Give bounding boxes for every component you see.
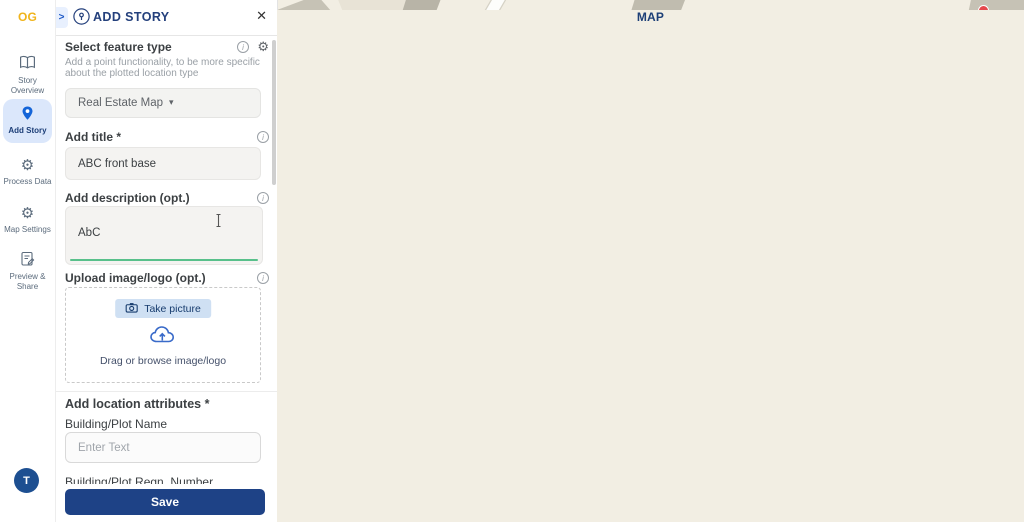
- chevron-down-icon: ▾: [169, 98, 174, 108]
- sidebar-item-story-overview[interactable]: Story Overview: [3, 55, 52, 95]
- upload-info-icon[interactable]: i: [257, 272, 269, 284]
- logo-og-text: OG: [18, 10, 37, 24]
- map-settings-gear-icon: ⚙: [3, 204, 52, 222]
- focus-underline: [70, 259, 258, 261]
- sidebar-item-map-settings[interactable]: ⚙ Map Settings: [3, 204, 52, 235]
- sidebar-item-preview-share[interactable]: Preview & Share: [3, 251, 52, 291]
- app-window: MAPOG Story Overview Add Story ⚙ Process…: [0, 0, 1024, 522]
- process-data-gear-icon: ⚙: [3, 156, 52, 174]
- feature-type-value: Real Estate Map: [78, 97, 163, 109]
- drag-browse-label: Drag or browse image/logo: [66, 355, 260, 367]
- upload-dropzone[interactable]: Take picture Drag or browse image/logo: [65, 287, 261, 383]
- feature-info-icon[interactable]: i: [237, 41, 249, 53]
- sidebar-item-process-data[interactable]: ⚙ Process Data: [3, 156, 52, 187]
- title-info-icon[interactable]: i: [257, 131, 269, 143]
- feature-type-label: Select feature type: [65, 40, 172, 54]
- add-story-panel: > ADD STORY ✕ Select feature type i ⚙ Ad…: [55, 0, 278, 522]
- feature-help-text: Add a point functionality, to be more sp…: [65, 57, 267, 68]
- logo-map-text: MAP: [277, 10, 1024, 522]
- feature-settings-gear-icon[interactable]: ⚙: [257, 40, 269, 55]
- story-overview-icon: [3, 55, 52, 73]
- sidebar-item-label: Add Story: [3, 126, 52, 136]
- building-name-input[interactable]: [65, 432, 261, 463]
- sidebar-item-label: Process Data: [3, 177, 52, 187]
- description-label: Add description (opt.): [65, 191, 190, 205]
- panel-scrollbar[interactable]: [272, 40, 276, 185]
- save-button[interactable]: Save: [65, 489, 265, 515]
- description-value: AbC: [78, 227, 100, 239]
- collapse-panel-button[interactable]: >: [55, 7, 68, 28]
- feature-type-select[interactable]: Real Estate Map ▾: [65, 88, 261, 118]
- panel-footer: Save: [55, 484, 277, 522]
- sidebar-item-add-story[interactable]: Add Story: [3, 99, 52, 143]
- building-name-label: Building/Plot Name: [65, 417, 167, 431]
- upload-label: Upload image/logo (opt.): [65, 271, 206, 285]
- panel-header: > ADD STORY ✕: [55, 0, 277, 36]
- story-pin-icon: [73, 8, 90, 30]
- text-cursor-icon: [214, 213, 223, 233]
- take-picture-button[interactable]: Take picture: [115, 299, 211, 318]
- mapog-logo[interactable]: MAPOG: [0, 10, 55, 24]
- close-panel-icon[interactable]: ✕: [256, 9, 267, 24]
- location-attributes-label: Add location attributes *: [65, 397, 209, 411]
- sidebar-item-label: Preview & Share: [3, 272, 52, 291]
- add-story-pin-icon: [3, 105, 52, 123]
- camera-icon: [125, 302, 138, 316]
- preview-share-icon: [3, 251, 52, 269]
- description-info-icon[interactable]: i: [257, 192, 269, 204]
- sidebar-item-label: Story Overview: [3, 76, 52, 95]
- feature-help-text: about the plotted location type: [65, 68, 267, 79]
- description-textarea[interactable]: AbC: [65, 206, 263, 265]
- take-picture-label: Take picture: [144, 303, 201, 315]
- cloud-upload-icon[interactable]: [149, 323, 177, 349]
- title-label: Add title *: [65, 130, 121, 144]
- title-input[interactable]: [65, 147, 261, 180]
- section-divider: [55, 391, 277, 392]
- sidebar-item-label: Map Settings: [3, 225, 52, 235]
- panel-title: ADD STORY: [93, 10, 170, 24]
- sidebar: MAPOG Story Overview Add Story ⚙ Process…: [0, 0, 56, 522]
- user-avatar[interactable]: T: [14, 468, 39, 493]
